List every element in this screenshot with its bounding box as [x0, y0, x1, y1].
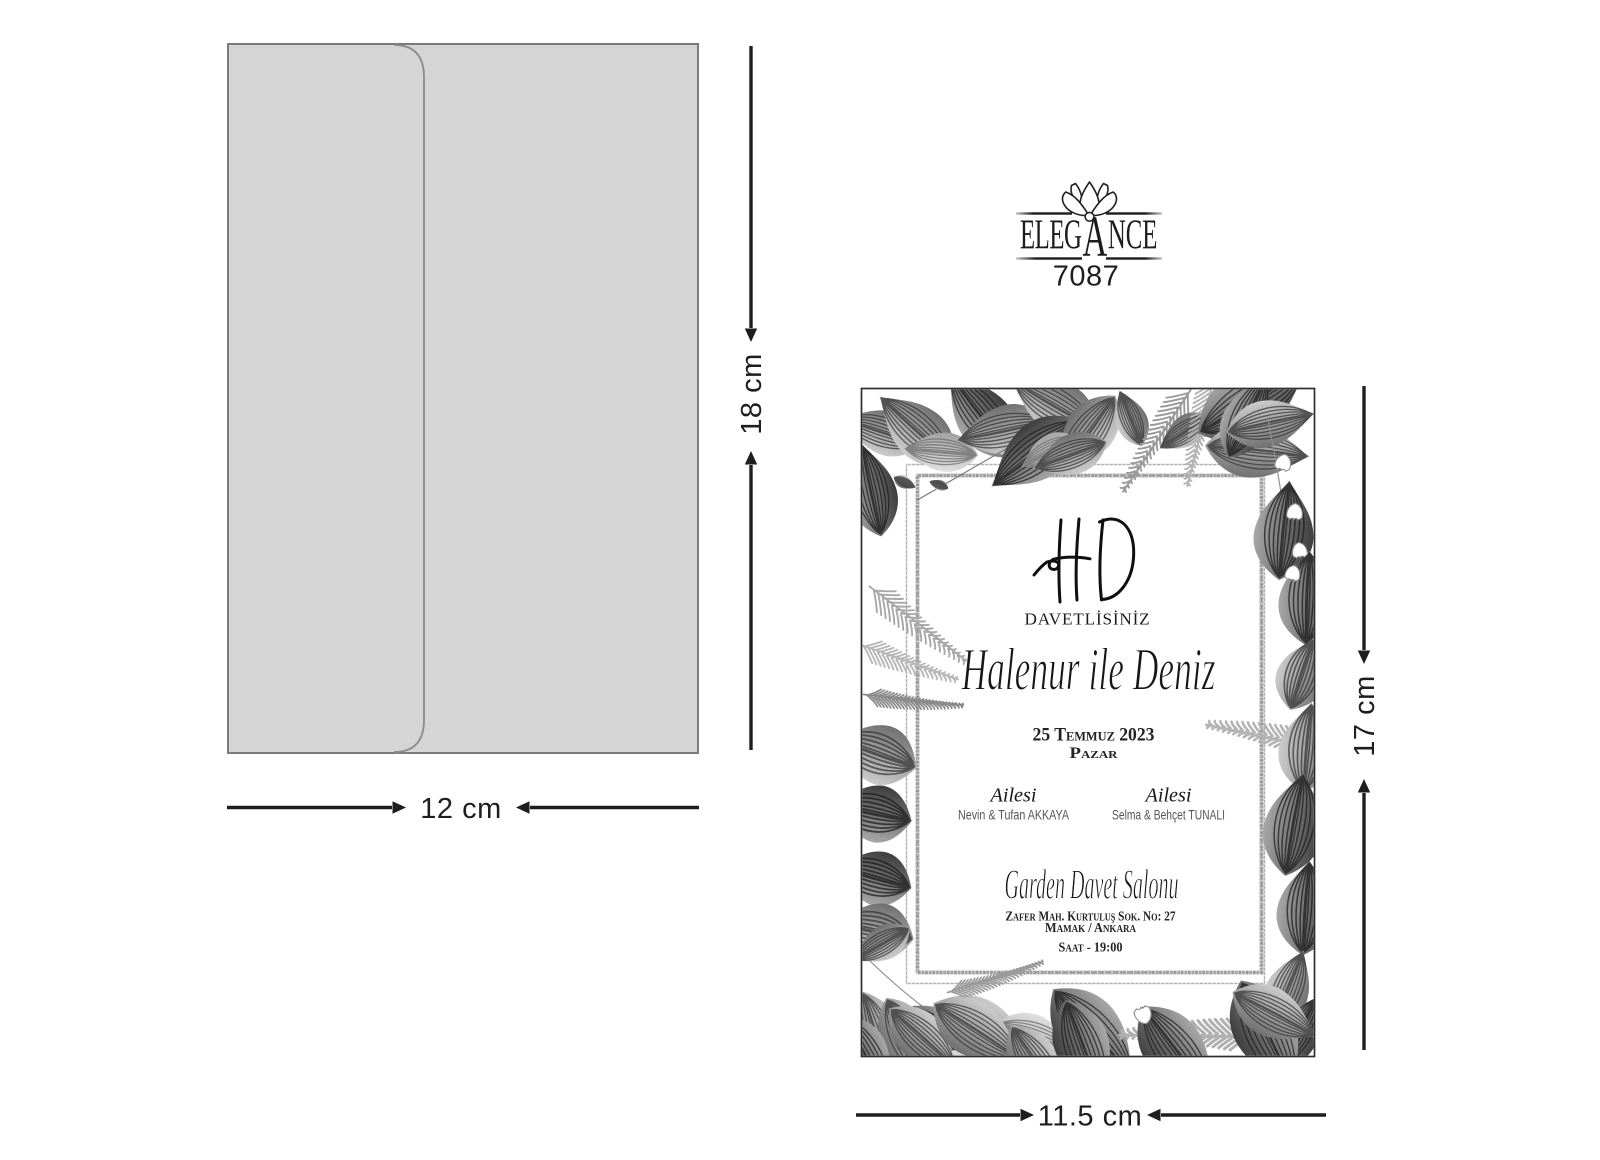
svg-text:NCE: NCE	[1108, 212, 1158, 258]
svg-text:12 cm: 12 cm	[420, 793, 501, 825]
svg-text:Selma & Behçet TUNALI: Selma & Behçet TUNALI	[1112, 808, 1225, 823]
svg-text:17 cm: 17 cm	[1349, 675, 1381, 756]
svg-text:Mamak / Ankara: Mamak / Ankara	[1045, 920, 1137, 935]
svg-text:Nevin & Tufan AKKAYA: Nevin & Tufan AKKAYA	[958, 808, 1069, 823]
svg-text:Halenur ile Deniz: Halenur ile Deniz	[961, 637, 1216, 703]
svg-text:DAVETLİSİNİZ: DAVETLİSİNİZ	[1025, 610, 1151, 629]
svg-text:Garden Davet Salonu: Garden Davet Salonu	[1005, 863, 1179, 909]
svg-text:Ailesi: Ailesi	[988, 785, 1036, 807]
svg-text:25 Temmuz 2023: 25 Temmuz 2023	[1033, 726, 1155, 746]
svg-text:7087: 7087	[1053, 261, 1120, 293]
svg-text:Pazar: Pazar	[1070, 745, 1119, 762]
svg-text:18 cm: 18 cm	[736, 353, 768, 434]
svg-text:ELEG: ELEG	[1020, 212, 1082, 258]
svg-text:Ailesi: Ailesi	[1143, 785, 1191, 807]
svg-text:11.5 cm: 11.5 cm	[1038, 1101, 1143, 1133]
svg-text:Saat - 19:00: Saat - 19:00	[1059, 940, 1123, 955]
